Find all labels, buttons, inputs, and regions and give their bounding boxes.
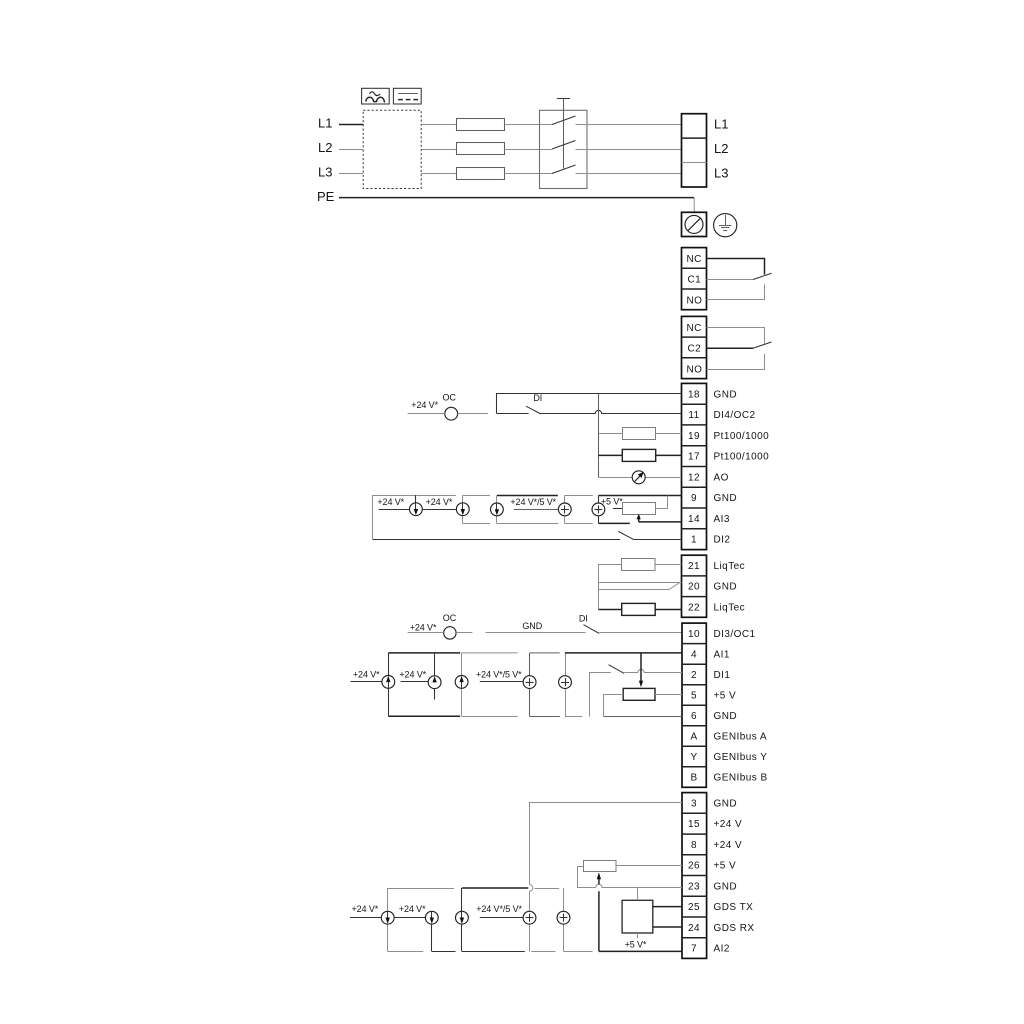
svg-text:18: 18 [688, 389, 700, 400]
svg-text:23: 23 [688, 882, 700, 893]
svg-text:GENIbus A: GENIbus A [714, 732, 768, 743]
svg-text:4: 4 [691, 649, 697, 660]
svg-text:+24 V*/5 V*: +24 V*/5 V* [510, 497, 556, 507]
svg-text:+24 V: +24 V [714, 819, 743, 830]
svg-text:DI2: DI2 [714, 535, 731, 546]
svg-text:24: 24 [688, 923, 700, 934]
svg-text:AI1: AI1 [714, 649, 730, 660]
svg-text:+24 V: +24 V [714, 840, 743, 851]
svg-text:8: 8 [691, 840, 697, 851]
svg-text:+5 V: +5 V [714, 861, 737, 872]
svg-text:+5 V*: +5 V* [601, 496, 623, 506]
svg-text:AI3: AI3 [714, 514, 730, 525]
svg-text:Pt100/1000: Pt100/1000 [714, 452, 770, 463]
svg-text:GND: GND [714, 582, 738, 593]
svg-text:+24 V*: +24 V* [399, 670, 426, 680]
svg-text:GENIbus Y: GENIbus Y [714, 752, 768, 763]
svg-text:10: 10 [688, 629, 700, 640]
svg-text:+24 V*: +24 V* [411, 400, 438, 410]
svg-text:+24 V*: +24 V* [353, 670, 380, 680]
svg-text:9: 9 [691, 493, 697, 504]
svg-text:GND: GND [714, 389, 738, 400]
svg-text:2: 2 [691, 670, 697, 681]
svg-text:+5 V: +5 V [714, 690, 737, 701]
svg-text:+24 V*: +24 V* [352, 904, 379, 914]
svg-text:+24 V*/5 V*: +24 V*/5 V* [476, 670, 522, 680]
svg-text:L1: L1 [318, 116, 332, 131]
svg-text:L2: L2 [318, 140, 332, 155]
svg-text:DI: DI [579, 613, 588, 623]
svg-text:+5 V*: +5 V* [625, 940, 647, 950]
svg-text:22: 22 [688, 602, 700, 613]
svg-text:NC: NC [687, 323, 702, 334]
svg-text:+24 V*: +24 V* [377, 497, 404, 507]
svg-text:OC: OC [443, 393, 457, 403]
svg-text:L3: L3 [318, 165, 332, 180]
svg-text:20: 20 [688, 582, 700, 593]
svg-text:L2: L2 [714, 141, 728, 156]
svg-text:14: 14 [688, 514, 700, 525]
svg-text:NO: NO [687, 295, 703, 306]
svg-text:AI2: AI2 [714, 944, 730, 955]
svg-text:DI: DI [533, 393, 542, 403]
svg-text:L3: L3 [714, 165, 728, 180]
svg-text:7: 7 [691, 944, 697, 955]
svg-text:NC: NC [687, 254, 702, 265]
svg-text:GDS RX: GDS RX [714, 923, 755, 934]
svg-text:19: 19 [688, 431, 700, 442]
svg-text:Y: Y [690, 752, 697, 763]
svg-text:AO: AO [714, 472, 729, 483]
svg-text:GND: GND [714, 799, 738, 810]
svg-text:+24 V*: +24 V* [399, 904, 426, 914]
svg-text:LiqTec: LiqTec [714, 602, 746, 613]
svg-text:PE: PE [317, 189, 335, 204]
svg-text:11: 11 [688, 410, 699, 421]
svg-text:B: B [690, 773, 697, 784]
svg-text:DI1: DI1 [714, 670, 731, 681]
svg-text:21: 21 [688, 561, 700, 572]
svg-text:+24 V*/5 V*: +24 V*/5 V* [476, 904, 522, 914]
svg-text:GND: GND [714, 493, 738, 504]
svg-text:Pt100/1000: Pt100/1000 [714, 431, 770, 442]
svg-text:3: 3 [691, 799, 697, 810]
svg-text:15: 15 [688, 819, 700, 830]
svg-text:GND: GND [522, 621, 542, 631]
svg-text:6: 6 [691, 711, 697, 722]
svg-text:+24 V*: +24 V* [426, 497, 453, 507]
svg-text:25: 25 [688, 902, 700, 913]
svg-text:+24 V*: +24 V* [410, 622, 437, 632]
svg-text:NO: NO [687, 364, 703, 375]
svg-text:L1: L1 [714, 116, 728, 131]
svg-text:DI3/OC1: DI3/OC1 [714, 629, 756, 640]
svg-text:DI4/OC2: DI4/OC2 [714, 410, 756, 421]
svg-text:26: 26 [688, 861, 700, 872]
svg-text:C2: C2 [688, 344, 702, 355]
svg-text:GND: GND [714, 711, 738, 722]
svg-text:1: 1 [691, 535, 697, 546]
svg-text:A: A [690, 732, 697, 743]
svg-text:GENIbus B: GENIbus B [714, 773, 768, 784]
svg-text:OC: OC [443, 613, 457, 623]
svg-text:5: 5 [691, 690, 697, 701]
svg-text:GND: GND [714, 882, 738, 893]
svg-text:LiqTec: LiqTec [714, 561, 746, 572]
svg-text:GDS TX: GDS TX [714, 902, 754, 913]
svg-text:17: 17 [688, 452, 700, 463]
svg-text:12: 12 [688, 472, 700, 483]
svg-text:C1: C1 [688, 275, 702, 286]
